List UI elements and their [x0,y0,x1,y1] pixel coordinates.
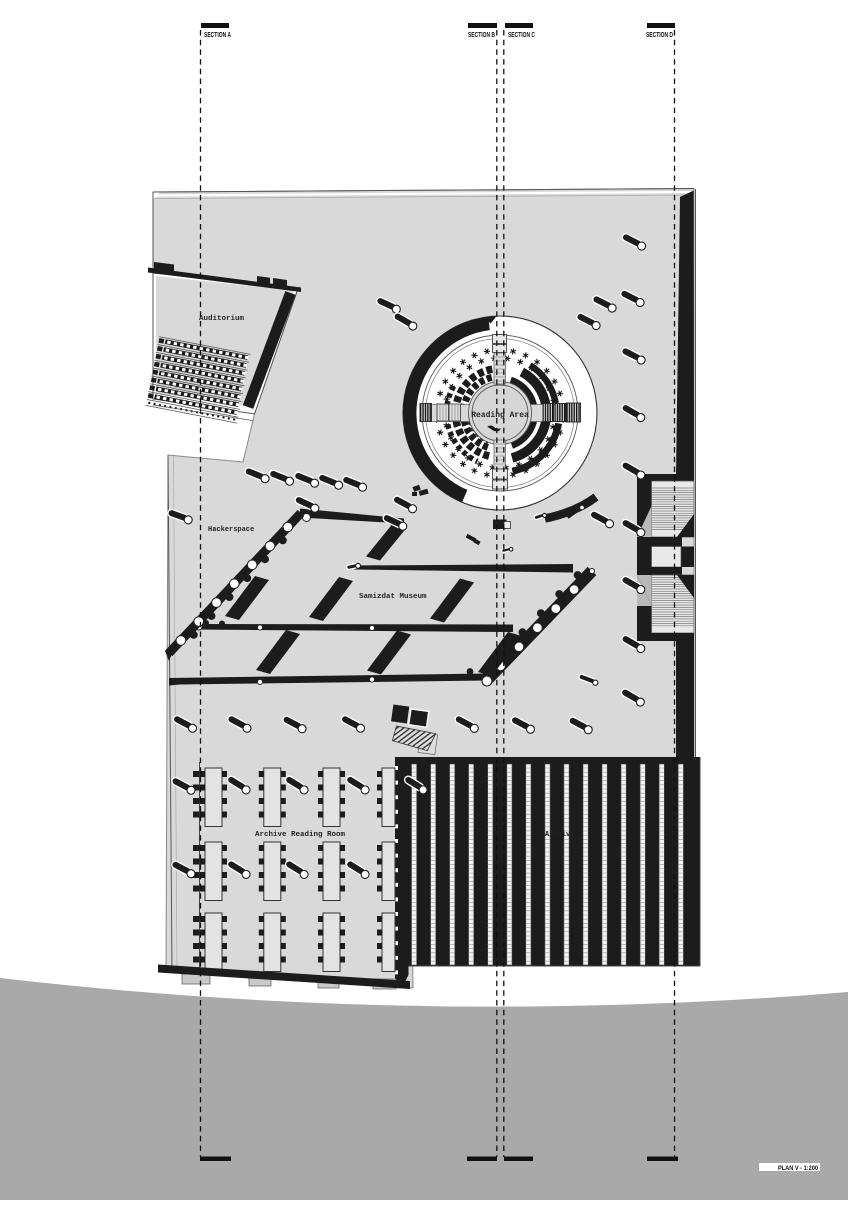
svg-text:SECTION C: SECTION C [508,30,535,39]
svg-text:SECTION D: SECTION D [646,30,673,39]
svg-text:Archive Reading Room: Archive Reading Room [255,831,346,839]
svg-text:Archive: Archive [545,831,574,839]
svg-text:PLAN V - 1:200: PLAN V - 1:200 [778,1165,818,1172]
svg-text:Samizdat Museum: Samizdat Museum [359,593,427,601]
svg-text:Reading Area: Reading Area [471,411,529,420]
svg-text:SECTION A: SECTION A [204,30,231,39]
svg-text:Auditorium: Auditorium [199,315,245,323]
svg-text:SECTION B: SECTION B [468,30,495,39]
svg-text:Hackerspace: Hackerspace [208,526,254,534]
